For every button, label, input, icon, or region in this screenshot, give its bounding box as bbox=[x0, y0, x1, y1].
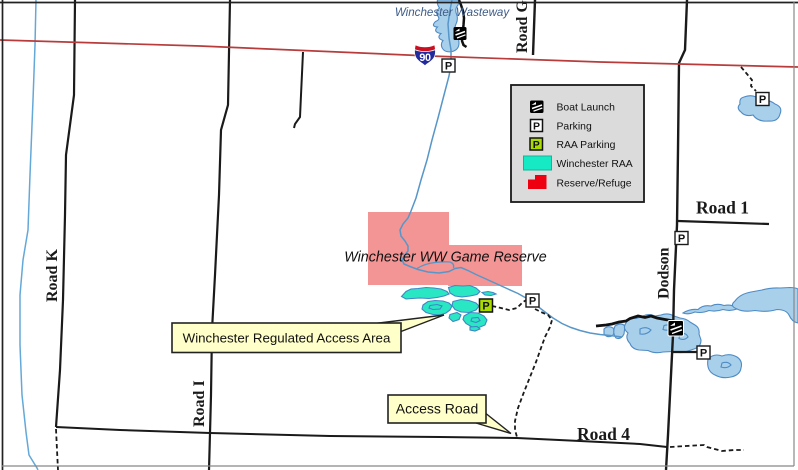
svg-text:P: P bbox=[678, 233, 685, 245]
svg-text:Winchester RAA: Winchester RAA bbox=[557, 159, 633, 170]
svg-text:Parking: Parking bbox=[557, 122, 592, 133]
svg-text:Road 1: Road 1 bbox=[696, 198, 749, 218]
svg-text:Dodson: Dodson bbox=[656, 247, 673, 299]
svg-text:Road I: Road I bbox=[191, 380, 208, 427]
svg-text:90: 90 bbox=[419, 52, 431, 64]
svg-text:Winchester Wasteway: Winchester Wasteway bbox=[395, 6, 511, 19]
svg-text:P: P bbox=[700, 348, 707, 360]
svg-text:Reserve/Refuge: Reserve/Refuge bbox=[557, 179, 632, 190]
svg-text:P: P bbox=[529, 296, 536, 308]
svg-text:Road G: Road G bbox=[514, 0, 531, 53]
svg-text:P: P bbox=[445, 61, 452, 73]
svg-text:P: P bbox=[482, 301, 489, 313]
svg-text:Boat Launch: Boat Launch bbox=[557, 103, 616, 114]
svg-text:Winchester Regulated Access Ar: Winchester Regulated Access Area bbox=[183, 331, 391, 346]
svg-text:Access Road: Access Road bbox=[396, 401, 478, 417]
svg-text:P: P bbox=[759, 94, 766, 106]
svg-text:P: P bbox=[533, 121, 540, 133]
svg-text:Road 4: Road 4 bbox=[577, 424, 630, 444]
svg-text:Road K: Road K bbox=[44, 249, 61, 302]
svg-text:P: P bbox=[533, 139, 540, 151]
svg-text:RAA Parking: RAA Parking bbox=[557, 140, 616, 151]
svg-text:Winchester WW Game Reserve: Winchester WW Game Reserve bbox=[344, 250, 547, 266]
